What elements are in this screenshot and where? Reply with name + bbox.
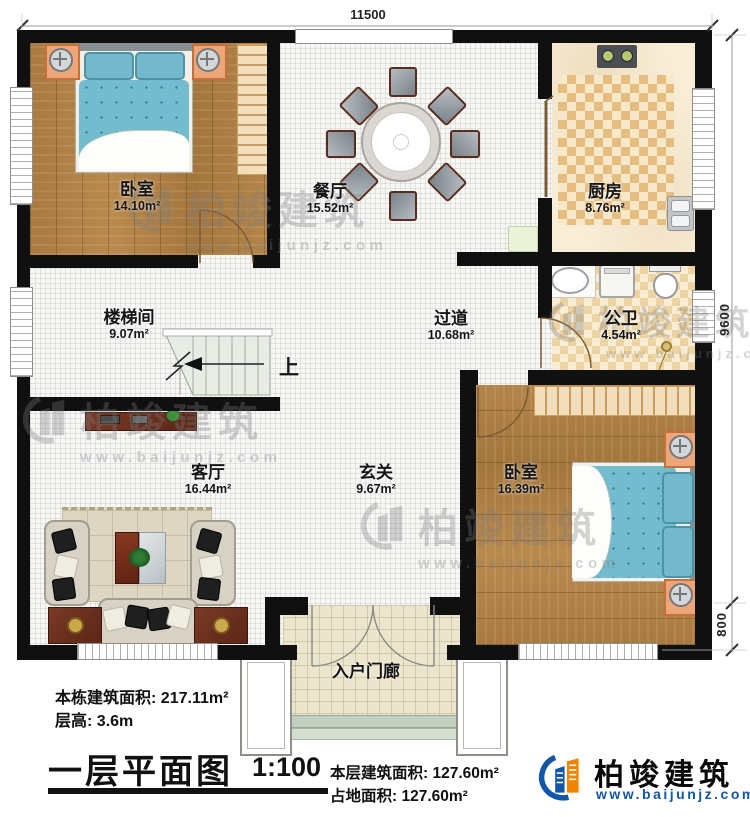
note-floor-height: 层高: 3.6m: [55, 707, 133, 731]
dim-right-porch: 800: [714, 612, 729, 637]
wall: [538, 266, 552, 318]
porch-step-1: [287, 715, 457, 728]
bed-1-pillow-right: [135, 52, 185, 80]
brand-logo-icon: [538, 748, 588, 806]
wardrobe-bedroom1: [237, 44, 269, 175]
room-label-bedroom1: 卧室 14.10m²: [114, 180, 161, 213]
note-floor-area: 本层建筑面积: 127.60m²: [330, 761, 499, 783]
console-tray: [100, 415, 120, 424]
bath-sink: [551, 267, 589, 294]
wall: [17, 645, 77, 660]
wall: [460, 370, 478, 385]
porch-step-2: [287, 728, 457, 740]
stove-burner: [602, 50, 614, 62]
side-table-ornament: [67, 617, 84, 634]
porch-column-left: [240, 655, 292, 756]
sofa-cushion: [53, 554, 79, 580]
kitchen-sink-basin: [671, 215, 690, 227]
room-label-bedroom2: 卧室 16.39m²: [498, 463, 545, 496]
console-tray: [132, 415, 148, 424]
wall: [695, 210, 712, 290]
room-label-kitchen: 厨房 8.76m²: [585, 182, 625, 215]
wardrobe-bedroom2: [534, 386, 697, 416]
stairs-up-label: 上: [279, 351, 299, 380]
dining-chair: [389, 67, 417, 97]
room-label-stairwell: 楼梯间 9.07m²: [104, 308, 155, 341]
wall: [218, 645, 297, 660]
drawing-scale: 1:100: [252, 752, 321, 783]
toilet-bowl: [653, 273, 678, 299]
dining-chair: [326, 130, 356, 158]
porch-column-right: [456, 655, 508, 756]
dining-chair: [450, 130, 480, 158]
stove-burner: [621, 50, 633, 62]
wall: [447, 645, 518, 660]
washing-machine-drum: [604, 268, 630, 274]
wall: [17, 205, 30, 287]
lamp-2-bottom: [669, 583, 693, 607]
wall: [17, 30, 295, 43]
wall: [267, 43, 280, 255]
sofa-cushion: [197, 577, 222, 602]
floor-plan: 柏竣建筑 www.baijunjz.com 柏竣建筑 www.baijunjz.…: [0, 0, 750, 817]
note-land-area: 占地面积: 127.60m²: [330, 784, 468, 806]
wall: [17, 30, 30, 87]
room-label-hallway: 过道 10.68m²: [428, 309, 475, 342]
floor-drain: [661, 341, 672, 352]
side-table-ornament: [213, 617, 230, 634]
window-stairwell: [10, 287, 33, 377]
lamp-1-left: [49, 48, 73, 72]
room-label-foyer: 玄关 9.67m²: [356, 463, 396, 496]
floor-porch: [283, 605, 460, 715]
wall: [430, 597, 463, 615]
lamp-2-top: [669, 435, 693, 459]
lamp-1-right: [196, 48, 220, 72]
bed-1-pillow-left: [84, 52, 134, 80]
wall: [265, 597, 308, 615]
page-title: 一层平面图: [48, 744, 233, 793]
room-label-dining: 餐厅 15.52m²: [307, 182, 354, 215]
brand-url: www.baijunjz.com: [596, 786, 750, 802]
sofa-cushion: [124, 604, 149, 629]
room-label-porch: 入户门廊: [332, 662, 400, 681]
sofa-cushion: [198, 554, 223, 579]
window-dining: [295, 29, 453, 44]
window-kitchen: [692, 88, 715, 210]
wall: [453, 30, 712, 43]
sofa-cushion: [52, 577, 77, 602]
wall: [538, 198, 552, 252]
window-bedroom1: [10, 87, 33, 205]
table-plant: [129, 548, 150, 567]
dim-right-main: 9600: [717, 303, 732, 336]
wall: [695, 343, 712, 660]
bed-1-headboard: [75, 43, 193, 51]
wall: [17, 377, 30, 660]
wall: [528, 370, 712, 385]
wall: [538, 43, 552, 99]
wall: [265, 615, 280, 645]
wall: [457, 252, 712, 266]
sofa-cushion: [102, 606, 128, 632]
wall: [253, 255, 280, 268]
wall: [695, 30, 712, 88]
room-label-bathroom: 公卫 4.54m²: [601, 309, 641, 342]
note-building-area: 本栋建筑面积: 217.11m²: [55, 684, 228, 708]
window-living: [77, 643, 218, 660]
wall: [658, 645, 712, 660]
dim-top: 11500: [338, 7, 398, 22]
room-label-living: 客厅 16.44m²: [185, 463, 232, 496]
title-underline: [48, 788, 328, 794]
bed-2-pillow-top: [662, 472, 694, 524]
wall: [30, 255, 198, 268]
window-bedroom2: [518, 643, 658, 660]
dining-table-center: [393, 134, 409, 150]
bed-2-pillow-bottom: [662, 526, 694, 578]
window-bathroom: [692, 290, 715, 343]
side-cabinet: [508, 226, 538, 252]
wall: [30, 397, 280, 411]
dining-chair: [389, 191, 417, 221]
kitchen-sink-basin: [671, 200, 690, 212]
